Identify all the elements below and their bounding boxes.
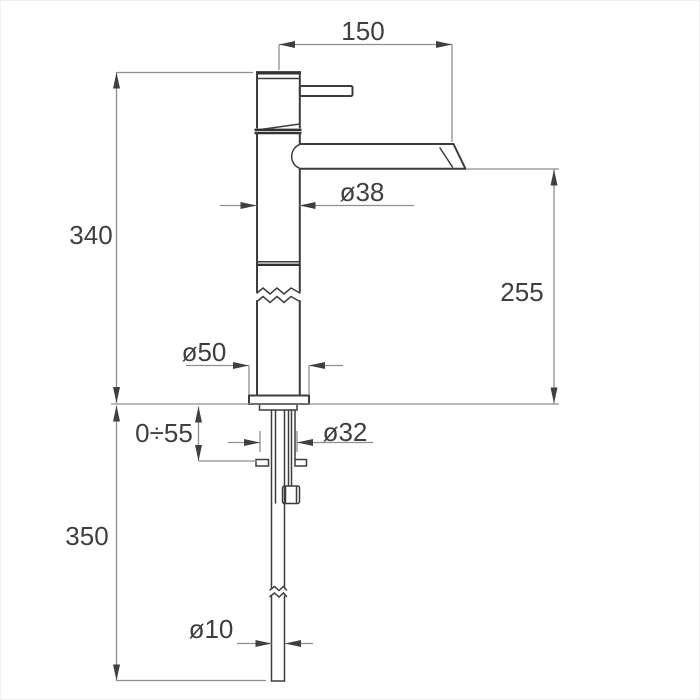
arrow-right-icon xyxy=(244,439,260,446)
mounting-washer-left xyxy=(256,460,269,467)
arrow-left-icon xyxy=(279,41,295,48)
dim-label-outlet-height: 255 xyxy=(500,277,543,307)
arrow-up-icon xyxy=(551,170,558,186)
arrow-left-icon xyxy=(297,439,313,446)
faucet-dimension-drawing: 150 340 255 ø38 xyxy=(1,1,700,700)
arrow-right-icon xyxy=(241,202,257,209)
arrow-up-icon xyxy=(113,73,120,89)
dim-body-diameter-38: ø38 xyxy=(220,177,414,209)
spout-cut-edge xyxy=(454,144,466,169)
arrow-right-icon xyxy=(233,362,249,369)
dim-label-deck-thickness: 0÷55 xyxy=(135,418,193,448)
shaft-break-symbol-lower xyxy=(257,297,300,303)
arrow-up-icon xyxy=(113,406,120,422)
dim-spout-reach-150: 150 xyxy=(279,16,452,142)
arrow-left-icon xyxy=(300,202,316,209)
spout-cut-inner-line xyxy=(440,148,453,167)
arrow-right-icon xyxy=(436,41,452,48)
dim-label-body-diameter: ø38 xyxy=(340,177,385,207)
shaft-break-symbol-upper xyxy=(257,288,300,294)
faucet-body xyxy=(249,73,466,681)
arrow-right-icon xyxy=(256,640,272,647)
arrow-up-icon xyxy=(195,407,202,423)
dim-label-base-diameter: ø50 xyxy=(182,337,227,367)
arrow-down-icon xyxy=(195,445,202,461)
dim-label-hose-diameter: ø10 xyxy=(189,614,234,644)
arrow-left-icon xyxy=(285,640,301,647)
dim-hose-diameter-10: ø10 xyxy=(189,614,313,647)
dim-label-height-above-deck: 340 xyxy=(69,220,112,250)
handle-lever xyxy=(300,86,353,96)
dim-base-diameter-50: ø50 xyxy=(182,337,343,395)
arrow-down-icon xyxy=(113,387,120,403)
base-flange xyxy=(249,396,309,405)
dim-label-below-deck: 350 xyxy=(65,521,108,551)
mounting-washer-right xyxy=(295,460,307,467)
dim-outlet-height-255: 255 xyxy=(467,169,559,404)
dim-deck-thickness-0-55: 0÷55 xyxy=(135,407,257,462)
arrow-down-icon xyxy=(113,665,120,681)
spout-left-cap-curve xyxy=(292,145,300,169)
arrow-left-icon xyxy=(309,362,325,369)
dim-label-shank-diameter: ø32 xyxy=(323,417,368,447)
dim-shank-diameter-32: ø32 xyxy=(228,417,373,452)
drawing-page: 150 340 255 ø38 xyxy=(0,0,700,700)
arrow-down-icon xyxy=(551,388,558,404)
dim-label-spout-reach: 150 xyxy=(341,16,384,46)
